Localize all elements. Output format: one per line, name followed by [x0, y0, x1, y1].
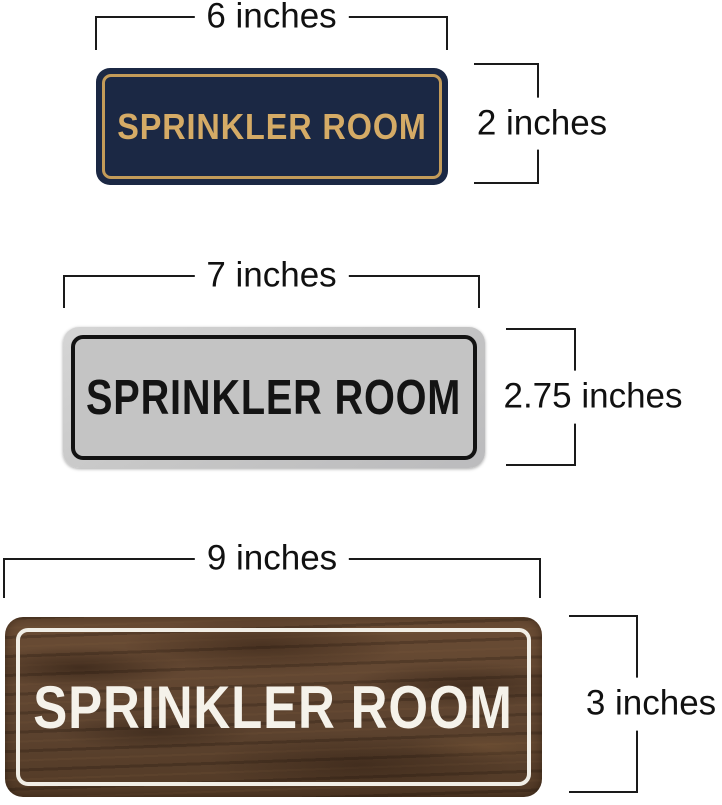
sign-silver: SPRINKLER ROOM — [63, 327, 485, 468]
width-dimension-silver: 7 inches — [63, 275, 480, 277]
height-dimension-label-wood: 3 inches — [576, 678, 722, 731]
sign-wood-text: SPRINKLER ROOM — [34, 673, 513, 742]
sign-silver-text: SPRINKLER ROOM — [86, 370, 461, 426]
height-dimension-wood: 3 inches — [636, 615, 638, 793]
sign-size-comparison-image: 6 inches SPRINKLER ROOM 2 inches 7 inche… — [0, 0, 722, 805]
width-dimension-label-wood: 9 inches — [195, 541, 349, 578]
height-dimension-silver: 2.75 inches — [574, 328, 576, 466]
sign-navy: SPRINKLER ROOM — [96, 68, 448, 185]
sign-navy-text: SPRINKLER ROOM — [117, 106, 427, 148]
width-dimension-wood: 9 inches — [3, 558, 541, 560]
width-dimension-label-silver: 7 inches — [194, 258, 348, 295]
height-dimension-label-navy: 2 inches — [467, 97, 617, 150]
width-dimension-navy: 6 inches — [95, 16, 448, 18]
height-dimension-navy: 2 inches — [537, 63, 539, 184]
width-dimension-label-navy: 6 inches — [194, 0, 348, 35]
height-dimension-label-silver: 2.75 inches — [493, 371, 692, 424]
sign-wood: SPRINKLER ROOM — [5, 617, 542, 797]
